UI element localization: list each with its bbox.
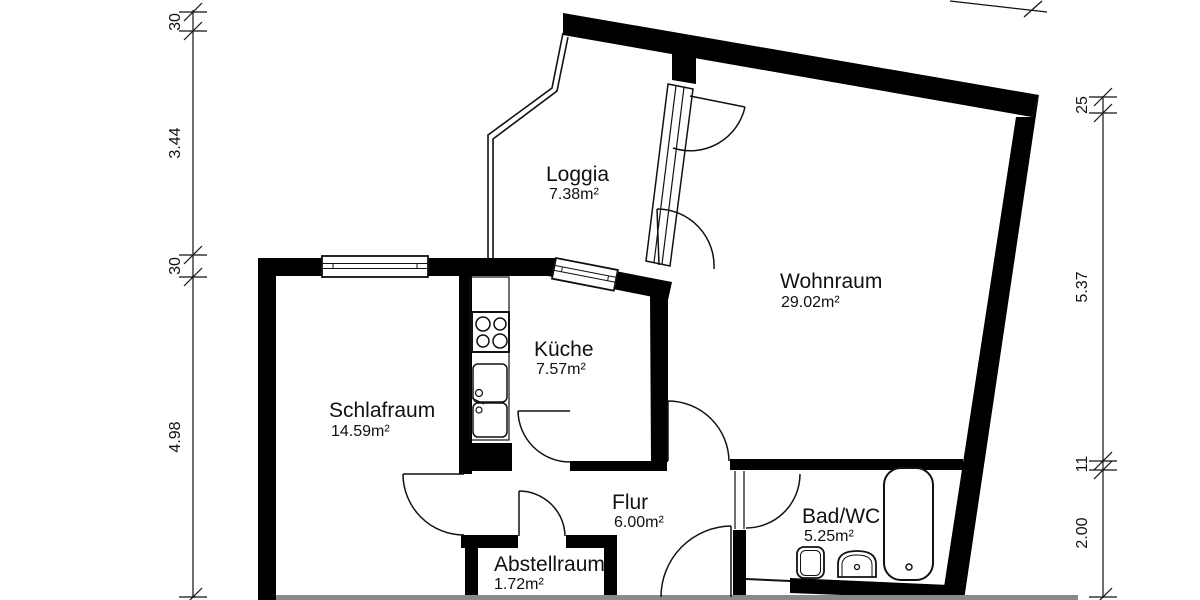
window-kueche xyxy=(552,258,618,291)
wall-segment xyxy=(730,459,963,470)
room-area-flur: 6.00m² xyxy=(614,514,664,531)
wall-segment xyxy=(570,461,667,471)
door-swing-wohnraum xyxy=(668,401,729,461)
floor-plan-drawing: Loggia 7.38m² Wohnraum 29.02m² Küche 7.5… xyxy=(0,0,1200,600)
door-opening xyxy=(518,534,566,549)
door-swing-kueche xyxy=(518,411,570,462)
wall-segment xyxy=(461,443,512,471)
dim-label: 30 xyxy=(167,13,184,31)
wall-segment xyxy=(733,530,746,600)
room-area-schlafraum: 14.59m² xyxy=(331,423,390,440)
room-labels: Loggia 7.38m² Wohnraum 29.02m² Küche 7.5… xyxy=(329,163,882,593)
room-label-abstellraum: Abstellraum xyxy=(494,553,605,576)
dim-label: 2.00 xyxy=(1074,517,1091,548)
room-area-loggia: 7.38m² xyxy=(549,186,599,203)
room-label-loggia: Loggia xyxy=(546,163,609,186)
room-area-wohnraum: 29.02m² xyxy=(781,294,840,311)
door-swing-abstellraum xyxy=(519,491,565,536)
room-area-bad: 5.25m² xyxy=(804,528,854,545)
dim-label: 4.98 xyxy=(167,421,184,452)
dimension-line-top-partial xyxy=(950,1,1047,17)
door-swing-schlafraum xyxy=(403,474,464,535)
room-area-kueche: 7.57m² xyxy=(536,361,586,378)
window-door-band-loggia xyxy=(646,84,693,266)
wall-segment xyxy=(563,13,1039,117)
cut-edge-line xyxy=(276,595,1078,600)
wall-segment xyxy=(465,548,478,600)
room-area-abstellraum: 1.72m² xyxy=(494,576,544,593)
room-label-flur: Flur xyxy=(612,491,648,514)
window-schlafraum xyxy=(322,256,428,277)
bathtub-icon xyxy=(884,468,933,580)
room-label-schlafraum: Schlafraum xyxy=(329,399,435,422)
room-label-bad: Bad/WC xyxy=(802,505,880,528)
door-swing-bad xyxy=(735,471,800,529)
wall-segment xyxy=(604,548,617,600)
room-label-kueche: Küche xyxy=(534,338,594,361)
wall-segment xyxy=(258,258,276,600)
wall-segment xyxy=(650,294,668,462)
washbasin-icon xyxy=(838,551,876,577)
dim-label: 5.37 xyxy=(1074,271,1091,302)
stove-icon xyxy=(472,312,509,352)
dimension-chain-left: 30 3.44 30 4.98 xyxy=(167,3,207,600)
dim-label: 30 xyxy=(167,257,184,275)
dim-label: 25 xyxy=(1074,96,1091,114)
door-swing-entrance xyxy=(661,526,731,597)
floorplan-page: Loggia 7.38m² Wohnraum 29.02m² Küche 7.5… xyxy=(0,0,1200,600)
toilet-icon xyxy=(797,547,824,578)
dim-label: 11 xyxy=(1074,456,1091,473)
dim-label: 3.44 xyxy=(167,127,184,158)
room-label-wohnraum: Wohnraum xyxy=(780,270,882,293)
wall-segment xyxy=(942,95,1039,600)
loggia-railing xyxy=(488,33,568,258)
wall-thin-line xyxy=(746,579,790,581)
wall-segment xyxy=(672,50,696,84)
kitchen-sink-icon xyxy=(472,364,507,437)
